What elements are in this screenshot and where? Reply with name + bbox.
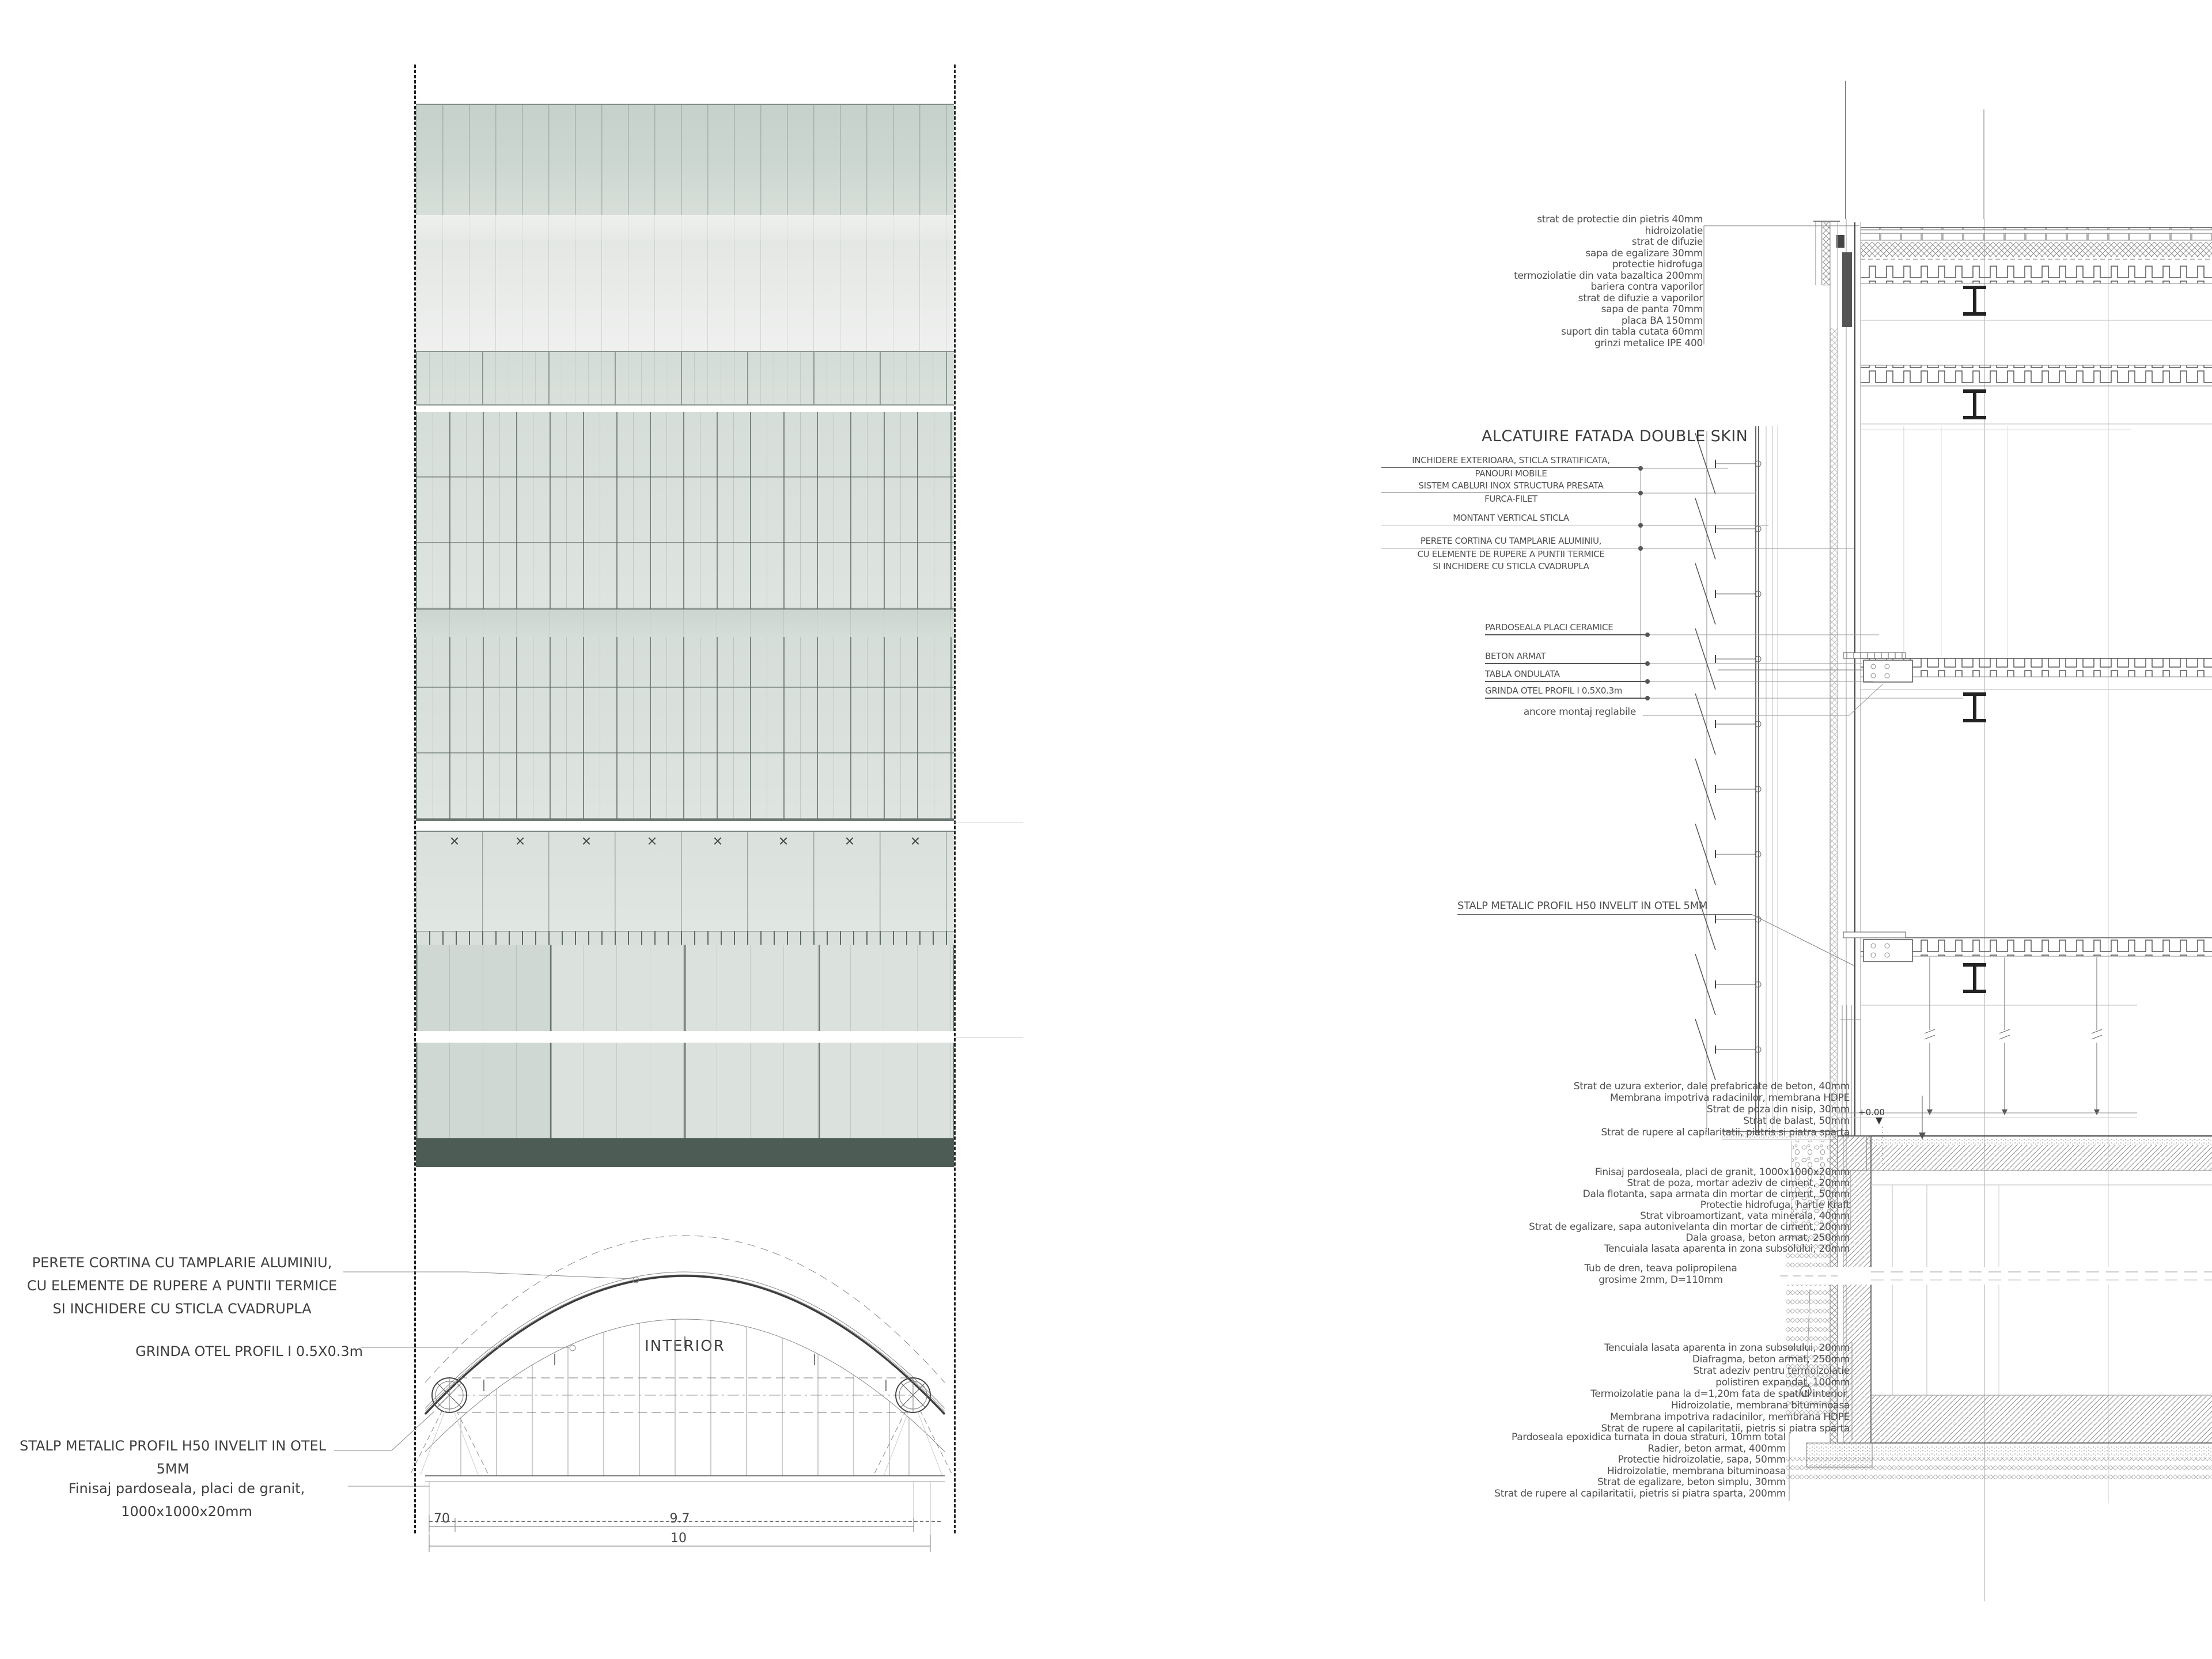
level-marker: +0.00 xyxy=(1858,1107,1885,1118)
axis-line xyxy=(1845,81,1846,219)
callout-inchidere-exterioara: INCHIDERE EXTERIOARA, STICLA STRATIFICAT… xyxy=(1381,454,1641,480)
spider-fitting-icon xyxy=(582,836,591,846)
layer-line: Strat de uzura exterior, dale prefabrica… xyxy=(1385,1081,1850,1092)
plan-detail-drawing: 70 9.7 10 xyxy=(323,1187,979,1590)
callout-perete-cortina-section: PERETE CORTINA CU TAMPLARIE ALUMINIU, CU… xyxy=(1381,535,1641,573)
spider-fitting-icon xyxy=(516,836,525,846)
callout-finisaj-pardoseala: Finisaj pardoseala, placi de granit,1000… xyxy=(25,1477,348,1523)
elevation-band-pale-glass xyxy=(416,240,954,351)
layer-line: termoziolatie din vata bazaltica 200mm xyxy=(1238,271,1703,282)
elevation-band-spider-glazing xyxy=(416,831,954,932)
elevation-band-roof-glazing xyxy=(416,104,954,217)
layer-line: polistiren expandat, 100mm xyxy=(1385,1377,1850,1388)
axis-line xyxy=(1983,109,1984,219)
layer-line: sapa de panta 70mm xyxy=(1238,304,1703,316)
callout-line: CU ELEMENTE DE RUPERE A PUNTII TERMICE xyxy=(1381,548,1641,560)
layer-line: Strat de rupere al capilaritatii, pietri… xyxy=(1325,1488,1786,1500)
layer-line: strat de difuzie a vaporilor xyxy=(1238,293,1703,305)
elevation-band-curtainwall-grid xyxy=(416,412,954,611)
callout-line: SISTEM CABLURI INOX STRUCTURA PRESATA xyxy=(1381,480,1641,493)
callout-beton-armat: BETON ARMAT xyxy=(1485,651,1649,664)
callout-line: Tub de dren, teava polipropilena xyxy=(1511,1263,1810,1274)
layer-line: Dala groasa, beton armat, 250mm xyxy=(1385,1233,1850,1244)
dimension-10: 10 xyxy=(671,1531,687,1546)
callout-stalp-metalic-section: STALP METALIC PROFIL H50 INVELIT IN OTEL… xyxy=(1457,900,1752,915)
elevation-band-transom-ticks xyxy=(416,931,954,946)
callout-montant-vertical: MONTANT VERTICAL STICLA xyxy=(1381,512,1641,525)
layer-line: Strat de rupere al capilaritatii, pietri… xyxy=(1385,1127,1850,1138)
callout-perete-cortina: PERETE CORTINA CU TAMPLARIE ALUMINIU,CU … xyxy=(21,1251,343,1320)
drain-callout: Tub de dren, teava polipropilenagrosime … xyxy=(1511,1263,1810,1286)
layer-line: Strat de poza din nisip, 30mm xyxy=(1385,1104,1850,1115)
callout-line: CU ELEMENTE DE RUPERE A PUNTII TERMICE xyxy=(21,1274,343,1297)
layer-line: Radier, beton armat, 400mm xyxy=(1325,1444,1786,1455)
layer-line: Diafragma, beton armat, 250mm xyxy=(1385,1354,1850,1365)
basement-wall-layers-annotation: Tencuiala lasata aparenta in zona subsol… xyxy=(1385,1342,1850,1434)
facade-elevation-drawing xyxy=(416,104,954,1167)
facade-title: ALCATUIRE FATADA DOUBLE SKIN xyxy=(1482,427,1748,445)
layer-line: Dala flotanta, sapa armata din mortar de… xyxy=(1385,1189,1850,1200)
elevation-band-large-panels xyxy=(416,1043,954,1138)
elevation-band-large-panels xyxy=(416,945,954,1031)
layer-line: Strat vibroamortizant, vata minerala, 40… xyxy=(1385,1211,1850,1222)
callout-grinda-otel-section: GRINDA OTEL PROFIL I 0.5X0.3m xyxy=(1485,685,1649,699)
elevation-band-glazing xyxy=(416,351,954,406)
callout-line: INCHIDERE EXTERIOARA, STICLA STRATIFICAT… xyxy=(1381,454,1641,468)
spider-fitting-icon xyxy=(713,836,722,846)
floor-extension-line xyxy=(954,823,1023,823)
layer-line: sapa de egalizare 30mm xyxy=(1238,248,1703,260)
layer-line: Strat de egalizare, sapa autonivelanta d… xyxy=(1385,1222,1850,1233)
layer-line: Strat de balast, 50mm xyxy=(1385,1115,1850,1127)
layer-line: Termoizolatie pana la d=1,20m fata de sp… xyxy=(1385,1388,1850,1400)
callout-line: FURCA-FILET xyxy=(1381,493,1641,505)
callout-sistem-cabluri: SISTEM CABLURI INOX STRUCTURA PRESATA FU… xyxy=(1381,480,1641,505)
terrace-layers-annotation: Strat de uzura exterior, dale prefabrica… xyxy=(1385,1081,1850,1138)
layer-line: Tencuiala lasata aparenta in zona subsol… xyxy=(1385,1342,1850,1354)
layer-line: suport din tabla cutata 60mm xyxy=(1238,327,1703,338)
ground-floor-layers-annotation: Finisaj pardoseala, placi de granit, 100… xyxy=(1385,1167,1850,1255)
callout-line: SI INCHIDERE CU STICLA CVADRUPLA xyxy=(1381,560,1641,573)
layer-line: bariera contra vaporilor xyxy=(1238,282,1703,293)
callout-line: PANOURI MOBILE xyxy=(1381,468,1641,480)
dimension-70: 70 xyxy=(434,1512,450,1526)
callout-line: Finisaj pardoseala, placi de granit, xyxy=(25,1477,348,1500)
spider-fitting-icon xyxy=(911,836,920,846)
layer-line: Membrana impotriva radacinilor, membrana… xyxy=(1385,1411,1850,1423)
callout-pardoseala-ceramice: PARDOSEALA PLACI CERAMICE xyxy=(1485,622,1649,635)
spider-fitting-icon xyxy=(845,836,854,846)
layer-line: Strat de poza, mortar adeziv de ciment, … xyxy=(1385,1178,1850,1189)
elevation-plinth xyxy=(416,1138,954,1167)
layer-line: Protectie hidrofuga, hartie Kraft xyxy=(1385,1200,1850,1211)
foundation-layers-annotation: Pardoseala epoxidica turnata in doua str… xyxy=(1325,1432,1786,1499)
spider-fitting-icon xyxy=(779,836,788,846)
floor-extension-line xyxy=(954,1037,1023,1037)
callout-line: SI INCHIDERE CU STICLA CVADRUPLA xyxy=(21,1297,343,1320)
callout-grinda-otel: GRINDA OTEL PROFIL I 0.5X0.3m xyxy=(104,1340,363,1363)
layer-line: strat de difuzie xyxy=(1238,237,1703,248)
layer-line: Hidroizolatie, membrana bituminoasa xyxy=(1325,1466,1786,1478)
spider-fitting-icon xyxy=(450,836,459,846)
dimension-9-7: 9.7 xyxy=(670,1512,690,1526)
layer-line: Membrana impotriva radacinilor, membrana… xyxy=(1385,1092,1850,1104)
layer-line: Hidroizolatie, membrana bituminoasa xyxy=(1385,1400,1850,1411)
layer-line: Finisaj pardoseala, placi de granit, 100… xyxy=(1385,1167,1850,1178)
callout-tabla-ondulata: TABLA ONDULATA xyxy=(1485,669,1649,682)
callout-line: grosime 2mm, D=110mm xyxy=(1511,1274,1810,1286)
layer-line: grinzi metalice IPE 400 xyxy=(1238,338,1703,350)
callout-line: PERETE CORTINA CU TAMPLARIE ALUMINIU, xyxy=(21,1251,343,1274)
elevation-band-curtainwall-grid xyxy=(416,637,954,821)
architectural-detail-sheet: { "colors": { "background": "#ffffff", "… xyxy=(0,0,2212,1659)
callout-line: STALP METALIC PROFIL H50 INVELIT IN OTEL xyxy=(12,1434,334,1457)
layer-line: Tencuiala lasata aparenta in zona subsol… xyxy=(1385,1244,1850,1255)
elevation-band-spandrel xyxy=(416,215,954,241)
callout-line: 1000x1000x20mm xyxy=(25,1500,348,1523)
layer-line: hidroizolatie xyxy=(1238,226,1703,237)
elevation-band-spandrel xyxy=(416,609,954,639)
layer-line: Strat adeziv pentru termoizolatie xyxy=(1385,1365,1850,1377)
layer-line: Strat de egalizare, beton simplu, 30mm xyxy=(1325,1477,1786,1488)
layer-line: Protectie hidroizolatie, sapa, 50mm xyxy=(1325,1455,1786,1466)
callout-ancore-montaj: ancore montaj reglabile xyxy=(1463,706,1636,718)
layer-line: placa BA 150mm xyxy=(1238,316,1703,327)
callout-line: PERETE CORTINA CU TAMPLARIE ALUMINIU, xyxy=(1381,535,1641,548)
spider-fitting-icon xyxy=(647,836,657,846)
callout-line: MONTANT VERTICAL STICLA xyxy=(1381,512,1641,525)
layer-line: strat de protectie din pietris 40mm xyxy=(1238,214,1703,226)
spider-fittings-row xyxy=(422,836,948,846)
callout-stalp-metalic: STALP METALIC PROFIL H50 INVELIT IN OTEL… xyxy=(12,1434,334,1480)
roof-layers-annotation: strat de protectie din pietris 40mmhidro… xyxy=(1238,214,1703,349)
layer-line: Pardoseala epoxidica turnata in doua str… xyxy=(1325,1432,1786,1444)
layer-line: protectie hidrofuga xyxy=(1238,259,1703,271)
